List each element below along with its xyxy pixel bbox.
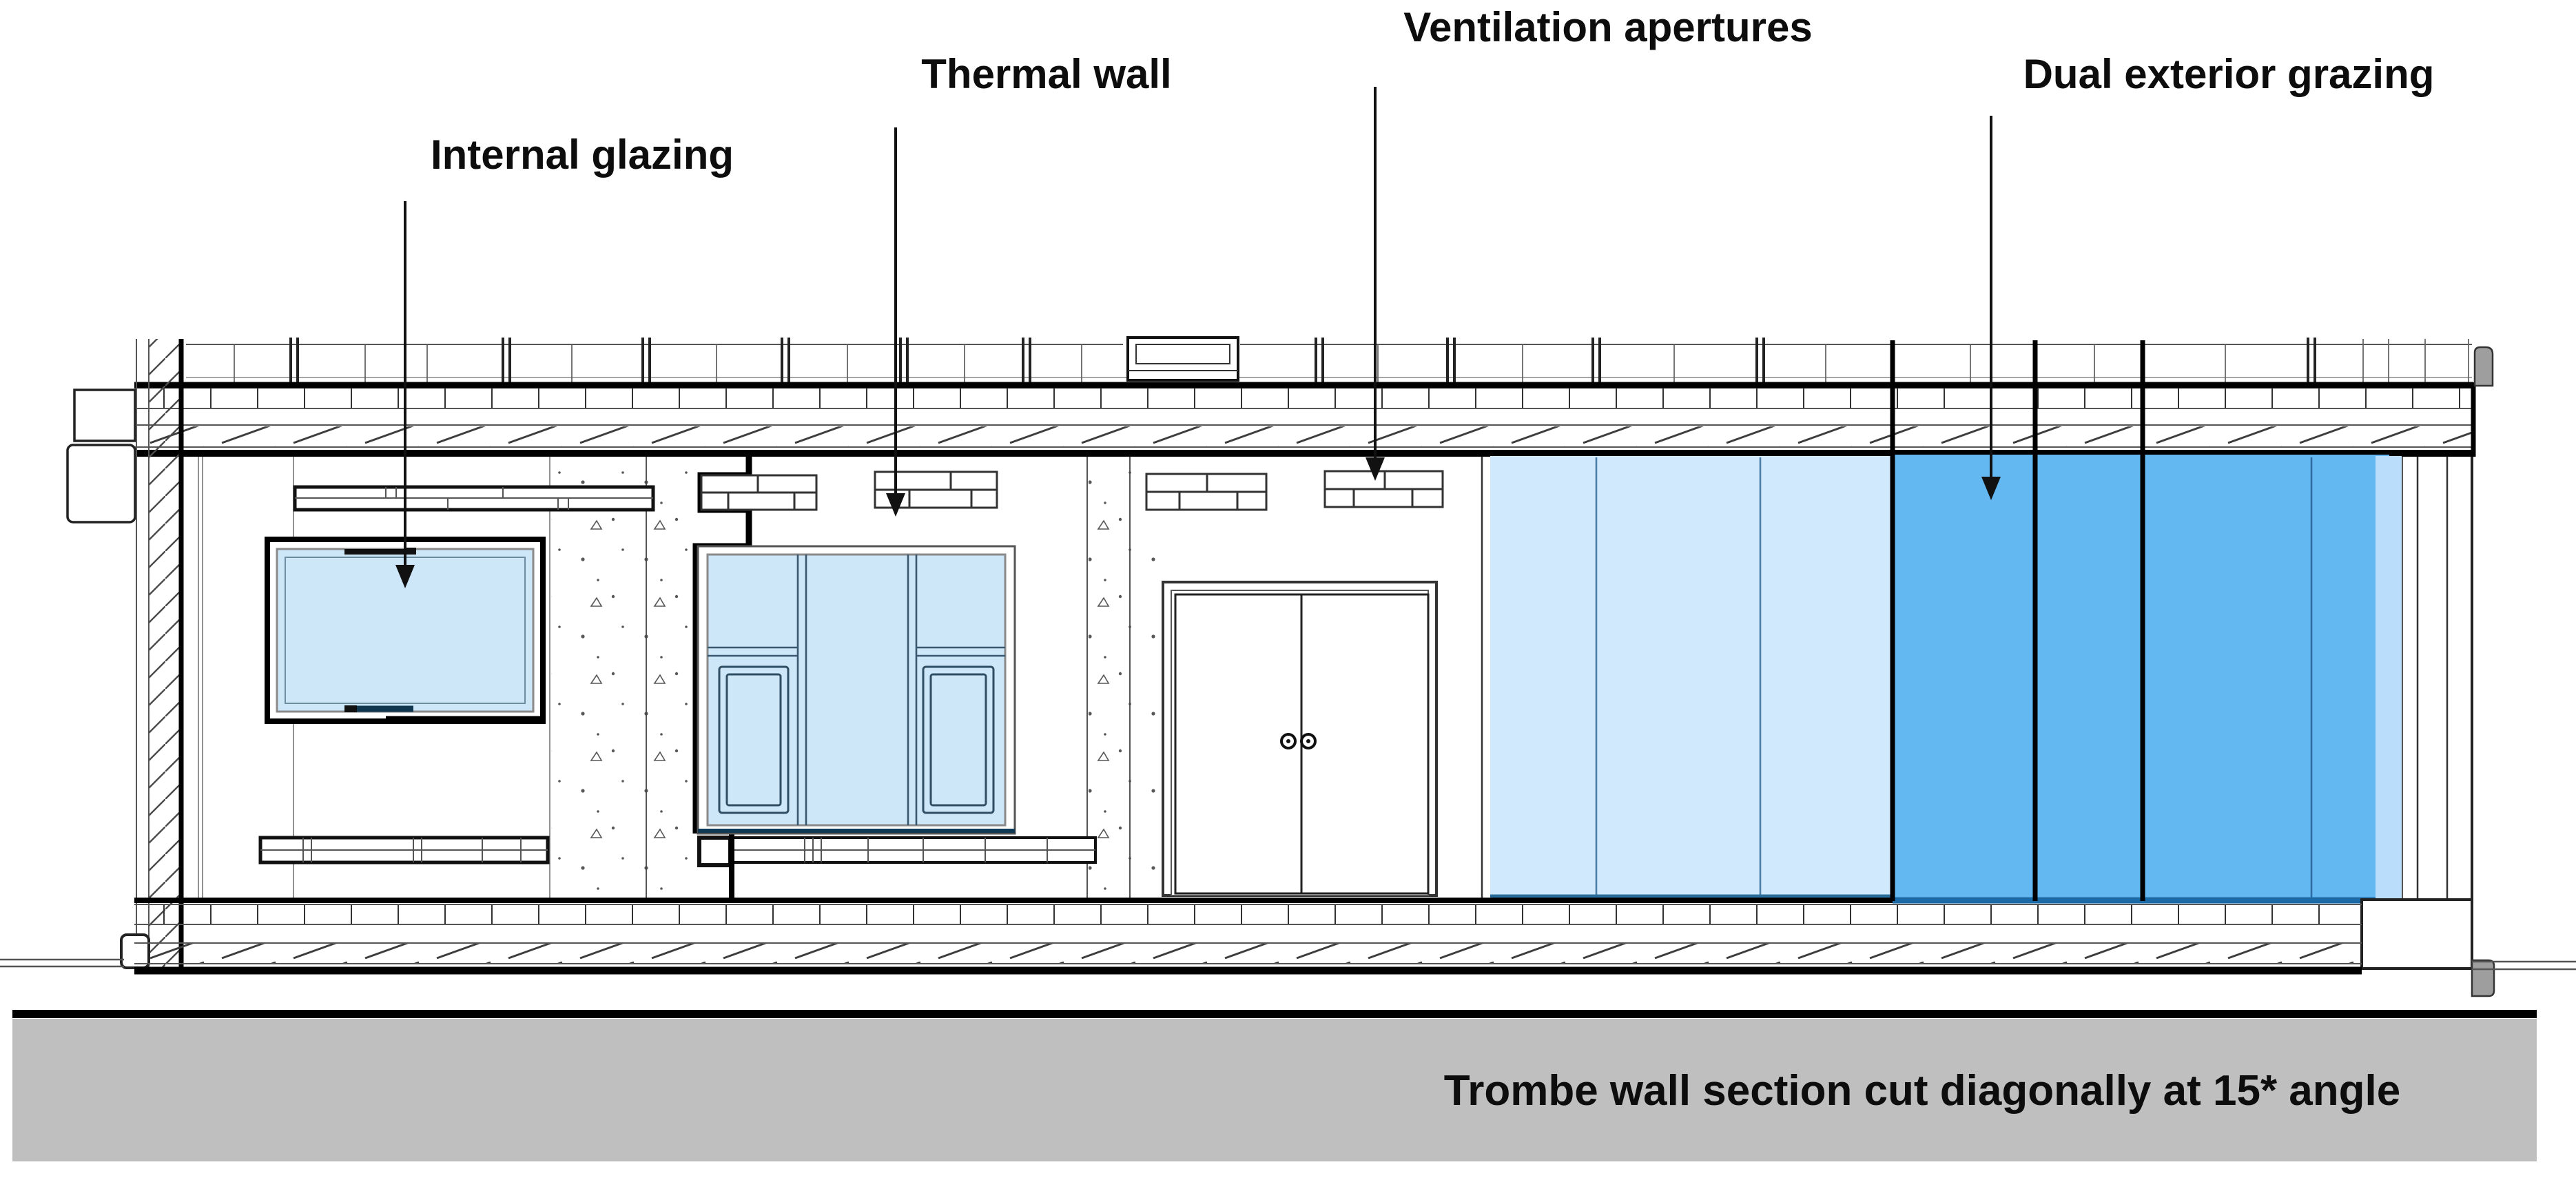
section-drawing-canvas: Trombe wall section cut diagonally at 15… xyxy=(0,0,2576,1180)
floor-assembly xyxy=(134,900,2362,971)
label-thermal-wall: Thermal wall xyxy=(921,51,1171,97)
column-base xyxy=(2362,900,2472,969)
label-ventilation-apertures: Ventilation apertures xyxy=(1403,4,1813,50)
ground: Trombe wall section cut diagonally at 15… xyxy=(0,960,2576,1161)
roof-left-cap xyxy=(68,390,135,522)
vent-lintel-2 xyxy=(875,472,997,508)
column-base-cap xyxy=(2472,960,2494,996)
roof-vent-box xyxy=(1128,338,1238,380)
thermal-wall-window xyxy=(696,457,1015,898)
label-internal-glazing: Internal glazing xyxy=(431,132,734,178)
label-dual-exterior-grazing: Dual exterior grazing xyxy=(2023,51,2435,97)
thermal-window-glass xyxy=(708,555,1005,825)
trombe-wall-diagram: Trombe wall section cut diagonally at 15… xyxy=(0,0,2576,1180)
building-section xyxy=(68,338,2494,996)
curtain-light-glass xyxy=(1490,456,1893,898)
curtain-sliver-glass xyxy=(2376,456,2402,909)
double-door xyxy=(1163,582,1436,896)
ventilation-apertures xyxy=(701,471,1443,510)
parapet-rail xyxy=(186,338,2472,383)
caption-text: Trombe wall section cut diagonally at 15… xyxy=(1444,1067,2401,1115)
vent-lintel-1 xyxy=(701,475,816,510)
curtain-wall-light xyxy=(1482,456,1893,898)
vent-lintel-4 xyxy=(1325,471,1443,507)
shelf-above-internal-glazing xyxy=(295,487,653,510)
vent-lintel-3 xyxy=(1146,474,1266,510)
roof-right-cap xyxy=(2475,347,2493,386)
